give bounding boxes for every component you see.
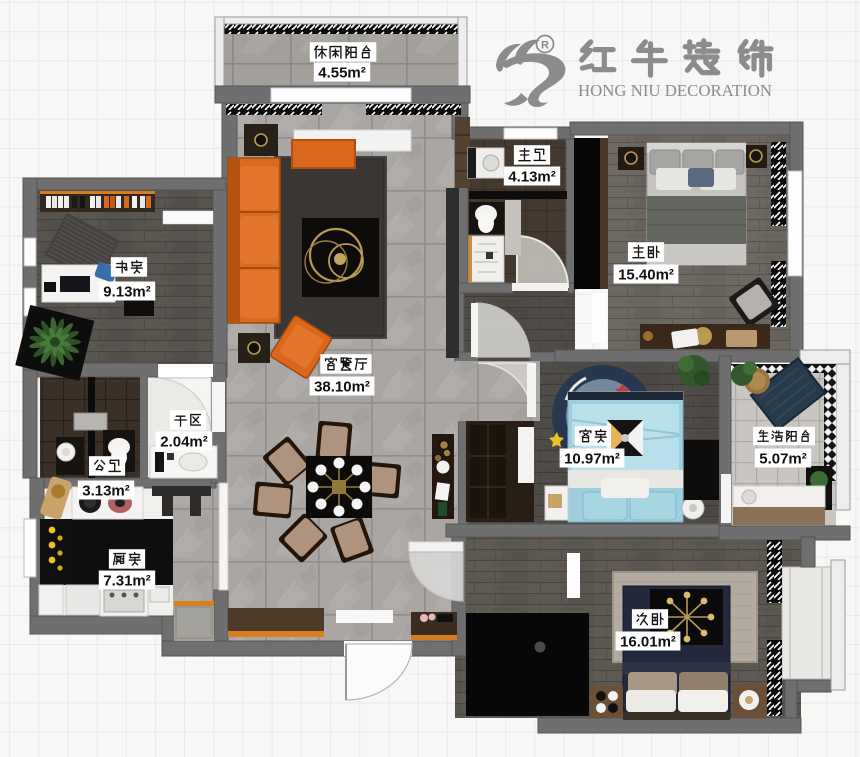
svg-text:5.07m²: 5.07m² xyxy=(759,450,807,467)
svg-text:3.13m²: 3.13m² xyxy=(82,482,130,499)
svg-text:15.40m²: 15.40m² xyxy=(618,266,674,283)
svg-text:10.97m²: 10.97m² xyxy=(564,450,620,467)
svg-text:R: R xyxy=(541,40,549,52)
svg-text:9.13m²: 9.13m² xyxy=(103,283,151,300)
svg-text:2.04m²: 2.04m² xyxy=(160,433,208,450)
svg-text:HONG NIU DECORATION: HONG NIU DECORATION xyxy=(578,81,772,100)
svg-text:4.55m²: 4.55m² xyxy=(318,64,366,81)
svg-text:16.01m²: 16.01m² xyxy=(620,633,676,650)
svg-text:7.31m²: 7.31m² xyxy=(103,572,151,589)
svg-text:4.13m²: 4.13m² xyxy=(508,168,556,185)
svg-text:38.10m²: 38.10m² xyxy=(314,378,370,395)
